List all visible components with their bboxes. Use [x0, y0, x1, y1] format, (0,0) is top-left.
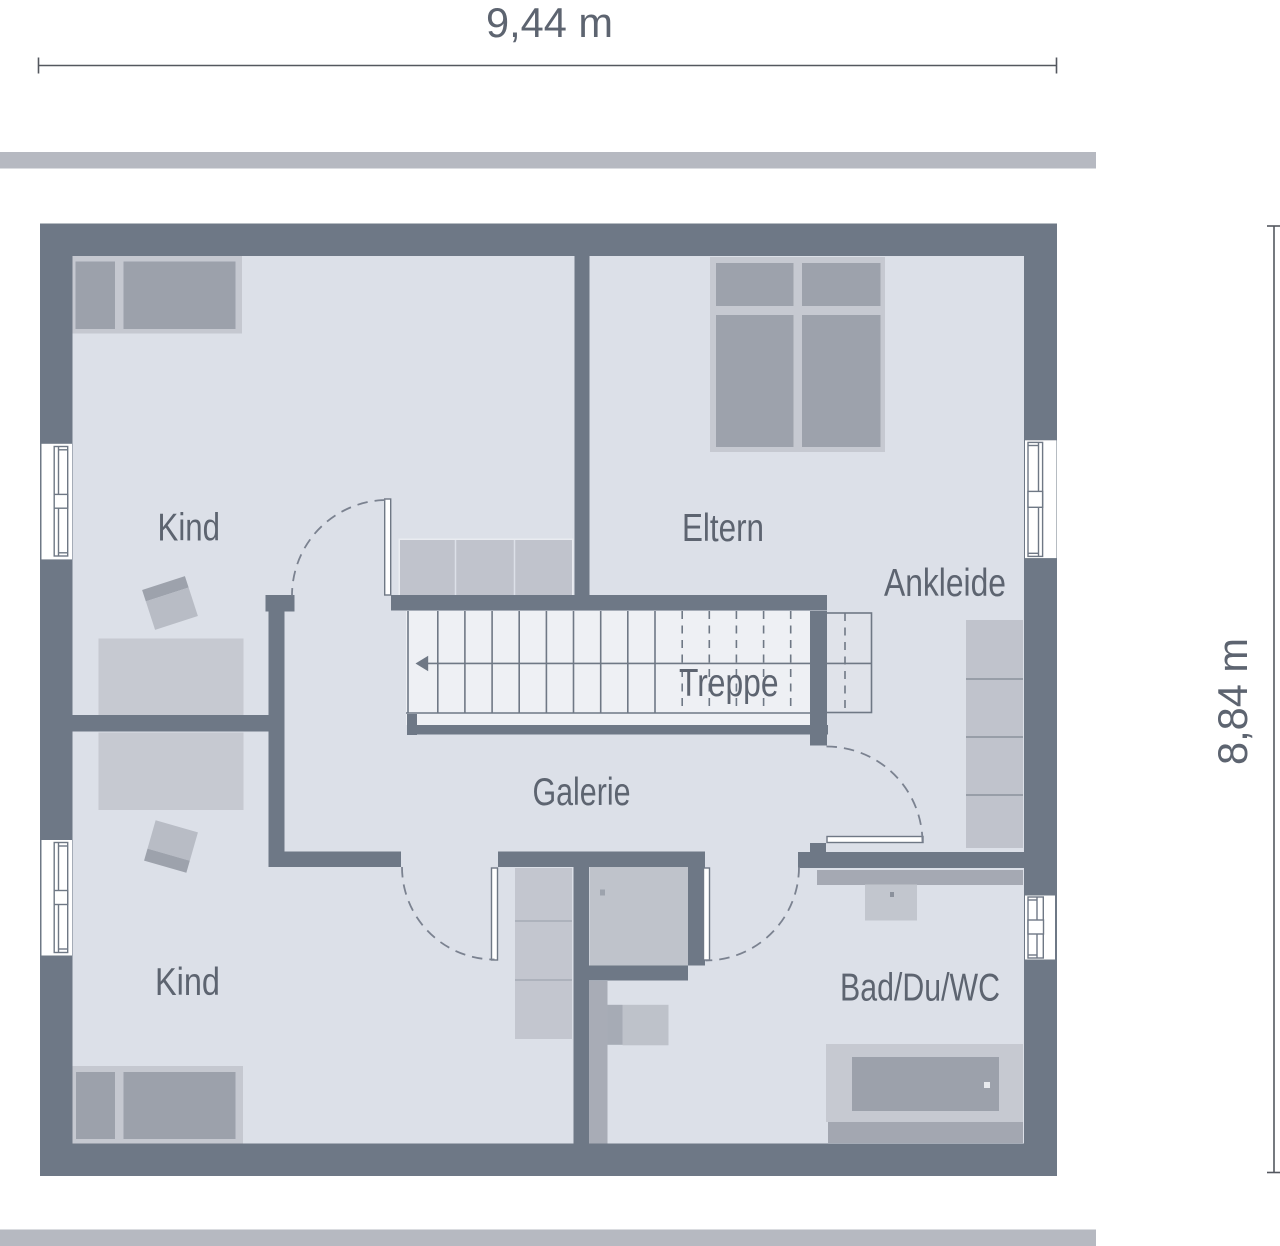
svg-text:8,84 m: 8,84 m	[1209, 638, 1256, 765]
svg-text:Ankleide: Ankleide	[884, 562, 1006, 605]
svg-text:9,44 m: 9,44 m	[486, 0, 613, 46]
svg-text:Kind: Kind	[155, 961, 220, 1004]
svg-text:Galerie: Galerie	[533, 771, 631, 814]
svg-text:Treppe: Treppe	[679, 662, 779, 705]
svg-text:Eltern: Eltern	[682, 507, 764, 550]
svg-text:Kind: Kind	[158, 507, 221, 550]
svg-text:Bad/Du/WC: Bad/Du/WC	[840, 967, 1000, 1010]
